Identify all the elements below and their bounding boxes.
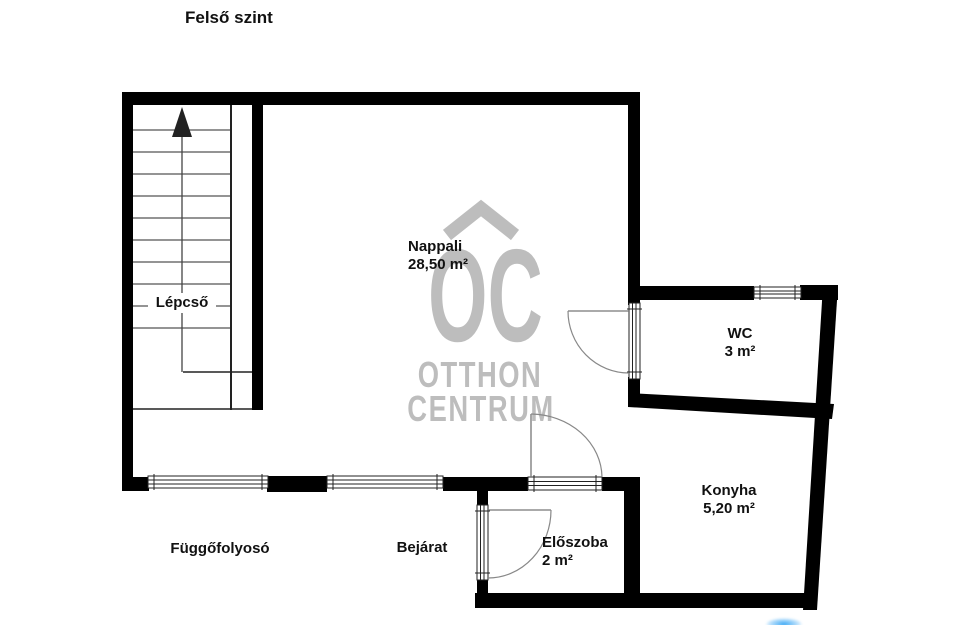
room-label-eloszoba: Előszoba 2 m²: [542, 534, 608, 570]
wall-top: [122, 92, 640, 105]
window-corridor-right: [327, 474, 443, 490]
room-area: 5,20 m²: [690, 500, 768, 518]
floor-plan-drawing: OC OTTHON CENTRUM: [0, 0, 960, 625]
room-label-konyha: Konyha 5,20 m²: [690, 482, 768, 518]
room-area: 3 m²: [705, 343, 775, 361]
annotation-corridor: Függőfolyosó: [150, 540, 290, 558]
wall-right-outer-slanted: [803, 285, 838, 610]
door-wc: [568, 303, 642, 379]
door-entrance: [475, 505, 551, 580]
logo-fragment-blue: [766, 618, 802, 625]
wall-eloszoba-right: [624, 477, 640, 595]
window-corridor-left: [148, 474, 268, 490]
watermark-line2: CENTRUM: [407, 388, 554, 429]
wall-bottom-eloszoba-konyha: [475, 593, 813, 608]
annotation-entrance: Bejárat: [372, 539, 472, 557]
wall-stair-right: [252, 98, 263, 410]
wall-bottom-seg-b: [267, 476, 327, 492]
floor-plan-page: Felső szint OC OTTHON CENTRUM: [0, 0, 960, 625]
wall-left: [122, 92, 133, 491]
wall-eloszoba-left-lower: [477, 578, 488, 595]
room-name: Előszoba: [542, 534, 608, 552]
wall-wc-bottom-slanted: [628, 393, 834, 419]
wall-eloszoba-left-upper: [477, 488, 488, 507]
room-label-nappali: Nappali 28,50 m²: [408, 238, 468, 274]
wall-bottom-seg-a: [122, 477, 149, 491]
room-area: 2 m²: [542, 552, 608, 570]
wall-nappali-right-upper: [628, 92, 640, 305]
room-label-wc: WC 3 m²: [705, 325, 775, 361]
stair-direction-arrow: [172, 107, 192, 137]
room-name: Konyha: [690, 482, 768, 500]
room-label-lepcso: Lépcső: [148, 293, 216, 313]
window-wc: [754, 285, 801, 300]
staircase: [133, 105, 252, 410]
room-name: Nappali: [408, 238, 468, 256]
wall-wc-top-left-seg: [636, 286, 754, 300]
room-area: 28,50 m²: [408, 256, 468, 274]
room-name: WC: [705, 325, 775, 343]
